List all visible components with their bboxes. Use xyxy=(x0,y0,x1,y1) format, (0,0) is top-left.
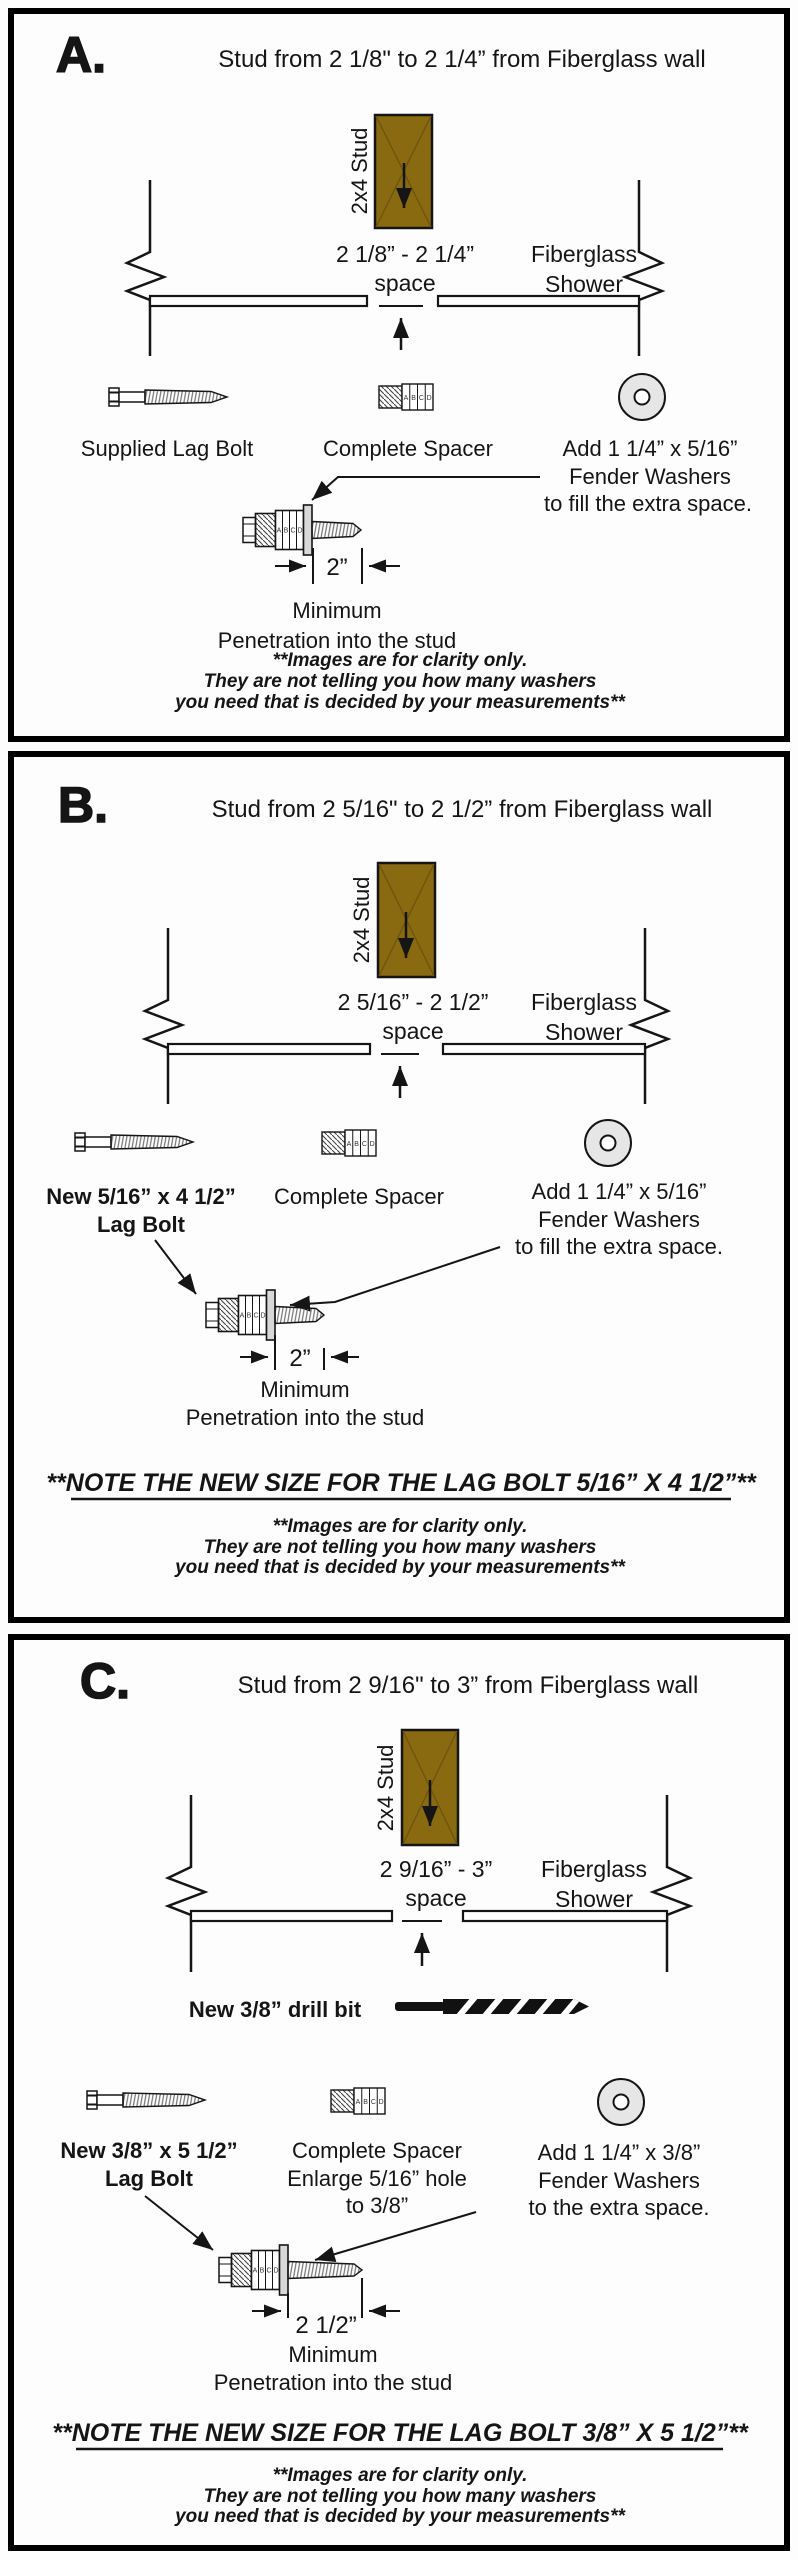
disclaimer-line1: **Images are for clarity only. xyxy=(273,2465,528,2486)
left-break-line xyxy=(145,928,182,1104)
washer-label-line3: to fill the extra space. xyxy=(515,1234,723,1259)
lag-bolt-icon xyxy=(75,1133,193,1151)
disclaimer-line3: you need that is decided by your measure… xyxy=(174,2506,626,2527)
dimension-value: 2 1/2” xyxy=(295,2312,356,2339)
penetration-label: Penetration into the stud xyxy=(214,2370,453,2395)
panel-b: B. Stud from 2 5/16" to 2 1/2” from Fibe… xyxy=(11,754,787,1620)
minimum-label: Minimum xyxy=(260,1377,349,1402)
panel-a-title: Stud from 2 1/8" to 2 1/4” from Fibergla… xyxy=(218,46,705,73)
space-range-label: 2 5/16” - 2 1/2” xyxy=(338,989,489,1015)
space-range-label: 2 9/16” - 3” xyxy=(380,1856,493,1882)
diagram-canvas: A B C D A B C D xyxy=(0,0,798,2560)
disclaimer-line2: They are not telling you how many washer… xyxy=(204,2486,597,2507)
washer-label-line2: Fender Washers xyxy=(538,2168,700,2193)
panel-a-letter: A. xyxy=(56,27,106,83)
space-range-label: 2 1/8” - 2 1/4” xyxy=(336,241,474,267)
note-new-size: **NOTE THE NEW SIZE FOR THE LAG BOLT 5/1… xyxy=(46,1469,757,1497)
shower-label: Shower xyxy=(545,1019,623,1045)
spacer-icon xyxy=(331,2088,385,2114)
spacer-icon xyxy=(379,384,433,410)
panel-a: A. Stud from 2 1/8" to 2 1/4” from Fiber… xyxy=(11,11,787,739)
panel-c-title: Stud from 2 9/16" to 3” from Fiberglass … xyxy=(238,1672,699,1699)
washer-label-line3: to fill the extra space. xyxy=(544,491,752,516)
bolt-spacer-assembly xyxy=(243,505,361,555)
drill-bit-icon xyxy=(395,1997,589,2016)
spacer-label-line2: Enlarge 5/16” hole xyxy=(287,2166,467,2191)
lag-bolt-leader-arrow xyxy=(145,2196,213,2250)
stud-icon xyxy=(378,863,435,977)
lag-bolt-label: Supplied Lag Bolt xyxy=(81,436,253,461)
stud-icon xyxy=(375,115,432,228)
fender-washer-icon xyxy=(619,374,665,420)
note-new-size: **NOTE THE NEW SIZE FOR THE LAG BOLT 3/8… xyxy=(52,2419,749,2447)
bolt-spacer-assembly xyxy=(206,1290,324,1340)
disclaimer-line2: They are not telling you how many washer… xyxy=(204,1537,597,1558)
fiberglass-label: Fiberglass xyxy=(531,989,637,1015)
washer-label-line1: Add 1 1/4” x 5/16” xyxy=(563,436,738,461)
drill-bit-label: New 3/8” drill bit xyxy=(189,1997,362,2022)
lag-bolt-label-line2: Lag Bolt xyxy=(105,2166,194,2191)
right-break-line xyxy=(653,1795,690,1972)
panel-c: C. Stud from 2 9/16" to 3” from Fibergla… xyxy=(11,1637,787,2548)
spacer-label: Complete Spacer xyxy=(323,436,493,461)
left-break-line xyxy=(168,1795,205,1972)
disclaimer-line3: you need that is decided by your measure… xyxy=(174,1557,626,1578)
right-break-line xyxy=(625,180,662,356)
minimum-label: Minimum xyxy=(292,598,381,623)
stud-label: 2x4 Stud xyxy=(373,1745,398,1832)
dimension-value: 2” xyxy=(289,1345,310,1372)
washer-leader-arrow xyxy=(290,1247,500,1305)
shower-label: Shower xyxy=(545,271,623,297)
lag-bolt-label-line1: New 5/16” x 4 1/2” xyxy=(46,1184,236,1209)
spacer-leader-arrow xyxy=(315,2212,476,2260)
stud-label: 2x4 Stud xyxy=(347,128,372,215)
fender-washer-icon xyxy=(598,2079,644,2125)
left-break-line xyxy=(127,180,164,356)
disclaimer-line3: you need that is decided by your measure… xyxy=(174,692,626,713)
washer-label-line2: Fender Washers xyxy=(538,1207,700,1232)
penetration-label: Penetration into the stud xyxy=(186,1405,425,1430)
lag-bolt-icon xyxy=(109,388,227,406)
panel-b-letter: B. xyxy=(58,777,108,833)
shower-label: Shower xyxy=(555,1886,633,1912)
spacer-label-line3: to 3/8” xyxy=(346,2193,408,2218)
washer-label-line1: Add 1 1/4” x 3/8” xyxy=(538,2140,701,2165)
washer-label-line2: Fender Washers xyxy=(569,464,731,489)
disclaimer-line2: They are not telling you how many washer… xyxy=(204,671,597,692)
fender-washer-icon xyxy=(585,1120,631,1166)
disclaimer-line1: **Images are for clarity only. xyxy=(273,1516,528,1537)
spacer-label: Complete Spacer xyxy=(274,1184,444,1209)
spacer-label-line1: Complete Spacer xyxy=(292,2138,462,2163)
disclaimer-line1: **Images are for clarity only. xyxy=(273,650,528,671)
space-word-label: space xyxy=(405,1885,466,1911)
instruction-sheet: A B C D A B C D xyxy=(0,0,798,2560)
lag-bolt-label-line2: Lag Bolt xyxy=(97,1212,186,1237)
spacer-icon xyxy=(322,1130,376,1156)
panel-b-title: Stud from 2 5/16" to 2 1/2” from Fibergl… xyxy=(212,796,713,823)
stud-label: 2x4 Stud xyxy=(349,877,374,964)
space-word-label: space xyxy=(382,1018,443,1044)
lag-bolt-icon xyxy=(87,2091,205,2109)
lag-bolt-label-line1: New 3/8” x 5 1/2” xyxy=(60,2138,237,2163)
dimension-value: 2” xyxy=(326,554,347,581)
stud-icon xyxy=(402,1730,458,1845)
washer-label-line1: Add 1 1/4” x 5/16” xyxy=(532,1179,707,1204)
spacer-leader-arrow xyxy=(312,477,540,500)
space-word-label: space xyxy=(374,270,435,296)
dimension-2in: 2” xyxy=(240,1335,359,1372)
fiberglass-label: Fiberglass xyxy=(541,1856,647,1882)
washer-label-line3: to the extra space. xyxy=(529,2195,710,2220)
fiberglass-label: Fiberglass xyxy=(531,241,637,267)
lag-bolt-leader-arrow xyxy=(155,1240,196,1294)
right-break-line xyxy=(631,928,668,1104)
panel-c-letter: C. xyxy=(80,1653,130,1709)
dimension-2in: 2” xyxy=(275,548,400,584)
minimum-label: Minimum xyxy=(288,2342,377,2367)
